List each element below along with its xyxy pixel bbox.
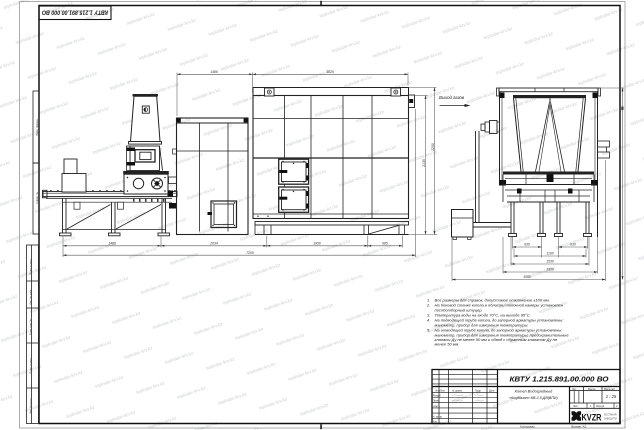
svg-text:Справ. №: Справ. № (35, 192, 39, 204)
svg-text:Котел Водогрейный: Котел Водогрейный (515, 389, 553, 394)
svg-text:630: 630 (570, 243, 576, 247)
svg-text:Н. контр.: Н. контр. (433, 415, 443, 418)
svg-text:KVZR: KVZR (582, 412, 602, 423)
svg-text:манометр, прибор для измерения: манометр, прибор для измерения температу… (435, 322, 529, 327)
svg-text:Выход газов: Выход газов (439, 95, 465, 100)
svg-text:КВТУ 1.215.891.00.000 ВО: КВТУ 1.215.891.00.000 ВО (510, 375, 609, 384)
svg-text:685: 685 (382, 242, 388, 246)
svg-text:менее 50 мм.: менее 50 мм. (435, 342, 460, 347)
svg-text:630: 630 (524, 243, 530, 247)
svg-text:Утв.: Утв. (433, 420, 438, 423)
svg-text:Листов: Листов (596, 405, 605, 408)
svg-text:2250: 2250 (431, 143, 435, 152)
svg-text:ЗАВОД РТИ: ЗАВОД РТИ (604, 417, 617, 420)
svg-text:Подп. и дата: Подп. и дата (29, 259, 33, 275)
svg-text:1950: 1950 (313, 242, 321, 246)
svg-text:3025: 3025 (326, 70, 334, 74)
svg-text:Подп. и дата: Подп. и дата (29, 358, 33, 374)
svg-text:Пров.: Пров. (433, 400, 440, 403)
svg-text:7200: 7200 (246, 251, 254, 255)
svg-text:1486: 1486 (210, 70, 218, 74)
svg-text:Лит.: Лит. (572, 388, 577, 391)
svg-text:Подп.: Подп. (475, 389, 482, 392)
svg-text:3050: 3050 (523, 275, 531, 279)
svg-text:1906: 1906 (546, 268, 554, 272)
svg-text:Взам. инв. №: Взам. инв. № (29, 319, 33, 335)
svg-text:КОСТАНАЙ: КОСТАНАЙ (604, 413, 617, 416)
svg-text:Формат А2: Формат А2 (571, 424, 586, 428)
svg-text:контр.: контр. (434, 405, 441, 408)
svg-text:1530: 1530 (546, 260, 554, 264)
svg-text:Лист: Лист (440, 389, 446, 392)
svg-text:1460: 1460 (108, 242, 116, 246)
svg-text:Масса: Масса (588, 388, 596, 391)
svg-text:1160: 1160 (546, 252, 553, 256)
svg-text:2135: 2135 (422, 159, 426, 168)
svg-text:«КырКазан»-КВ-2,5-ДВ(ВПИ): «КырКазан»-КВ-2,5-ДВ(ВПИ) (509, 396, 557, 400)
svg-text:4.: 4. (427, 318, 430, 323)
svg-text:Разраб.: Разраб. (433, 395, 442, 398)
svg-text:КВТУ 1.215.891.00.000 ВО: КВТУ 1.215.891.00.000 ВО (42, 9, 108, 16)
svg-text:Лист: Лист (573, 405, 579, 408)
svg-text:Дата: Дата (489, 389, 495, 392)
svg-text:Инв. № подл.: Инв. № подл. (29, 398, 33, 414)
svg-text:№ докум.: № докум. (452, 389, 463, 392)
svg-text:2034: 2034 (209, 242, 218, 246)
svg-text:1 : 25: 1 : 25 (606, 394, 617, 399)
svg-text:5.: 5. (427, 328, 430, 333)
svg-text:2.: 2. (426, 303, 430, 308)
svg-text:Перв. примен.: Перв. примен. (35, 118, 39, 136)
svg-text:Инв. № дубл.: Инв. № дубл. (29, 289, 33, 305)
svg-text:Копировал: Копировал (520, 424, 535, 428)
svg-text:Масштаб: Масштаб (604, 388, 615, 391)
